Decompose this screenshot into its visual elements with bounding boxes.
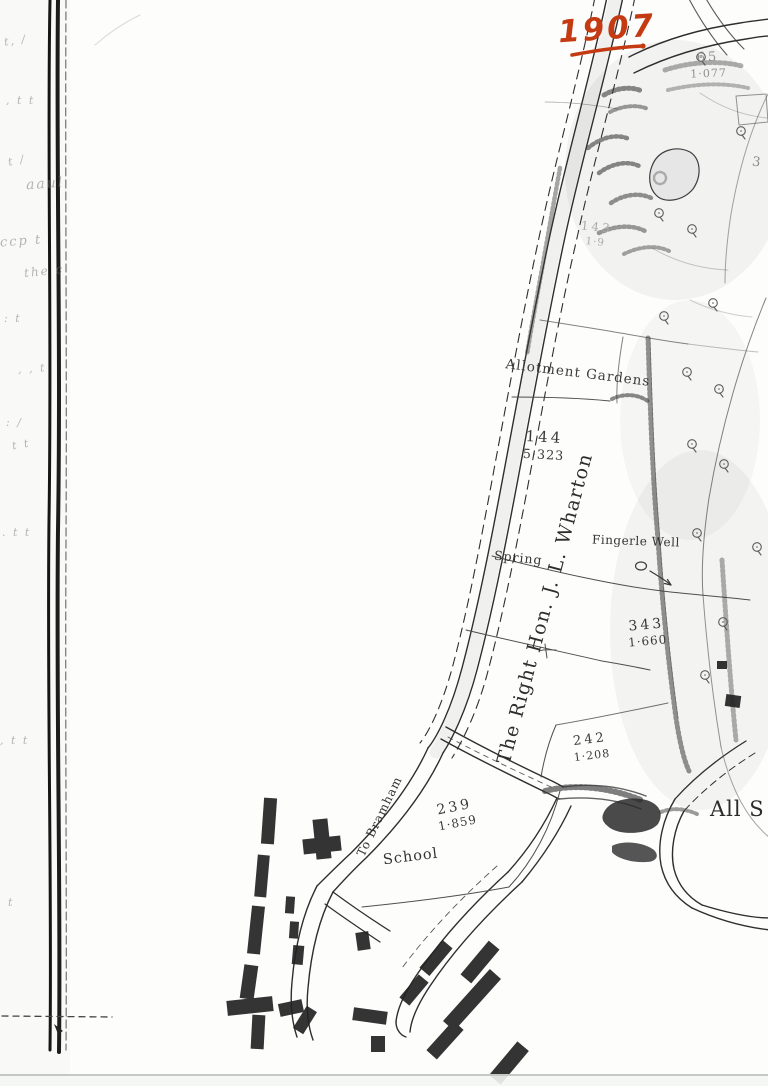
scanned-map-page: 1907 Allotment Gardens Spring Fingerle W…	[0, 0, 768, 1086]
parcel-number: 143	[580, 218, 613, 237]
margin-note: . t t	[2, 526, 31, 539]
margin-note: , t t	[0, 734, 29, 747]
parcel-area: 1·077	[690, 66, 727, 82]
margin-note: aaul	[25, 175, 64, 194]
parcel-area: 1·9	[585, 235, 605, 250]
scan-bottom-edge	[0, 1074, 768, 1086]
margin-note: , t t	[6, 94, 35, 107]
margin-note: t	[8, 896, 14, 909]
margin-note: : /	[6, 416, 23, 429]
parcel-area: 5·323	[522, 446, 564, 465]
parcel-label-144: 144 5·323	[507, 426, 581, 466]
year-annotation: 1907	[557, 9, 657, 50]
parcel-label-65: 65 1·077	[689, 49, 727, 82]
margin-note: ccp t	[0, 233, 43, 251]
margin-note: : t	[4, 312, 22, 325]
parcel-number: 65	[696, 50, 719, 68]
parcel-label-143: 143 1·9	[579, 218, 614, 250]
margin-note: , , t	[18, 361, 47, 376]
parcel-label-343: 343 1·660	[611, 613, 684, 653]
church-block	[602, 799, 660, 863]
parcel-number: 144	[525, 427, 564, 448]
label-church: All S	[710, 798, 765, 821]
